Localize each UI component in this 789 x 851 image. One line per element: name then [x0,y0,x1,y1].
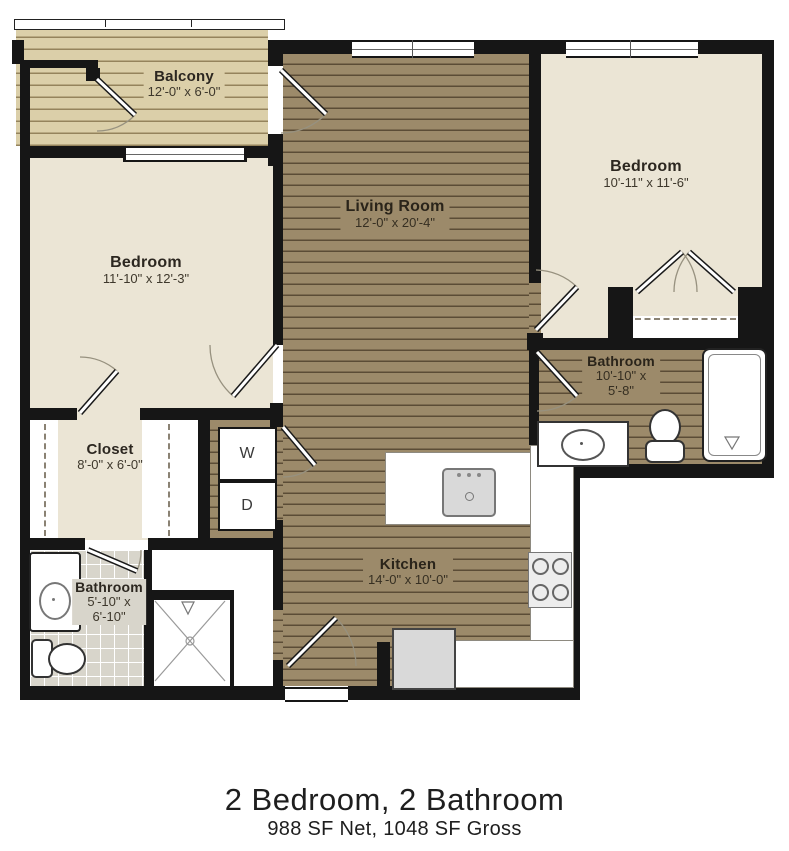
window-pane-line [566,49,698,50]
tub-drain [52,598,55,601]
wall-segment [543,338,608,350]
room-label-bathroom-left: Bathroom 5'-10" x 6'-10" [72,579,146,625]
window-cap [123,146,126,162]
window-cap [244,146,247,162]
wall-segment [198,417,210,540]
room-dims-line2: 5'-8" [582,384,660,399]
shower-stall [152,598,232,688]
wall-balcony [22,60,98,68]
wall-segment [738,287,762,350]
wall-segment [273,146,283,345]
entry-threshold [285,687,348,702]
room-label-bedroom-right: Bedroom 10'-11" x 11'-6" [603,158,688,191]
balcony-floor [16,26,268,146]
washer-label: W [239,445,255,463]
toilet-tank-right [645,440,685,463]
faucet-dot [457,473,461,477]
room-name: Closet [77,441,143,458]
room-label-closet: Closet 8'-0" x 6'-0" [77,441,143,473]
room-dims: 14'-0" x 10'-0" [363,573,453,588]
room-dims: 11'-10" x 12'-3" [103,272,189,287]
room-dims-line1: 5'-10" x [72,595,146,610]
window-mullion [630,40,631,58]
wall-segment [608,287,633,350]
room-dims-line2: 6'-10" [72,610,146,625]
wall-segment [148,538,283,550]
wall-segment [20,408,77,420]
wall-segment [527,333,543,350]
stove-fixture [528,552,572,608]
dryer-box: D [218,481,277,531]
tub-inner [708,354,761,456]
faucet-dot [477,473,481,477]
wall-bottom-right [348,686,580,700]
vanity-sink-right [537,421,629,467]
window-pane-line [123,154,247,155]
living-room-window [352,40,474,58]
washer-box: W [218,427,277,481]
room-label-balcony: Balcony 12'-0" x 6'-0" [144,68,225,100]
closet-rod-left [44,424,46,536]
room-dims: 12'-0" x 20'-4" [340,216,449,231]
room-name: Balcony [144,68,225,85]
room-name: Bathroom [72,579,146,595]
wall-segment [273,660,283,686]
closet-shelf-right [142,420,198,538]
burner [552,558,569,575]
room-label-kitchen: Kitchen 14'-0" x 10'-0" [363,556,453,588]
room-dims: 10'-11" x 11'-6" [603,176,688,191]
window-mullion [412,40,413,58]
bedroom-right-window [566,40,698,58]
room-name: Kitchen [363,556,453,573]
entry-closet-niche [234,598,273,686]
wall-segment [144,590,234,598]
wall-bottom-left [20,686,285,700]
room-label-living: Living Room 12'-0" x 20'-4" [340,198,449,231]
doorway-floor [273,610,283,660]
bedroom-right-floor [541,54,762,350]
dryer-label: D [241,497,254,515]
burner [532,584,549,601]
wall-jamb [86,68,100,81]
basin-drain [580,442,583,445]
wall-top [474,40,566,54]
bedroom-closet-rod [635,318,736,320]
living-kitchen-floor [283,54,530,686]
railing-post [105,20,106,27]
room-dims: 8'-0" x 6'-0" [77,458,143,473]
tub-oval [39,582,71,620]
bathtub-right [702,348,767,462]
sink-drain [465,492,474,501]
wall-segment [20,538,85,550]
room-label-bathroom-right: Bathroom 10'-10" x 5'-8" [582,353,660,399]
room-label-bedroom-left: Bedroom 11'-10" x 12'-3" [103,254,189,287]
plan-title: 2 Bedroom, 2 Bathroom [0,782,789,818]
burner [532,558,549,575]
wall-segment [273,520,283,610]
closet-rod-right [168,424,170,536]
wall-stub [377,642,390,686]
wall-segment [268,40,283,66]
basin-oval [561,429,605,461]
bedroom-left-window [123,146,247,162]
refrigerator-fixture [392,628,456,690]
window-pane-line [352,49,474,50]
kitchen-counter-bottom [452,640,574,688]
room-name: Bedroom [103,254,189,272]
room-dims: 12'-0" x 6'-0" [144,85,225,100]
faucet-dot [467,473,471,477]
room-name: Bedroom [603,158,688,176]
plan-subtitle: 988 SF Net, 1048 SF Gross [0,818,789,841]
wall-segment [20,146,123,158]
railing-post [191,20,192,27]
wall-segment [529,54,541,283]
toilet-bowl-left [48,643,86,675]
burner [552,584,569,601]
room-name: Living Room [340,198,449,216]
room-dims-line1: 10'-10" x [582,369,660,384]
kitchen-sink [442,468,496,517]
wall-top [283,40,352,54]
floor-plan-page: W D [0,0,789,851]
balcony-railing [14,19,285,30]
room-name: Bathroom [582,353,660,369]
